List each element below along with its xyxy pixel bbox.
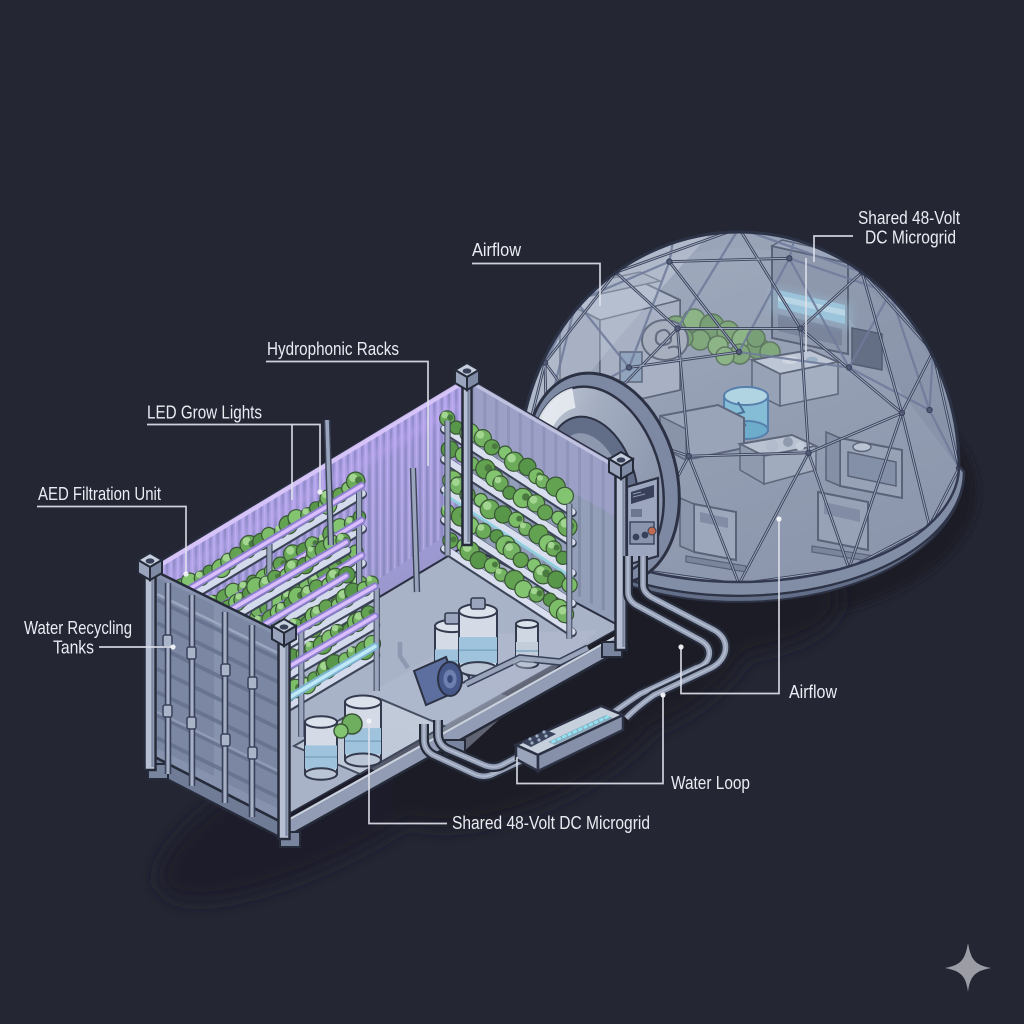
svg-text:Airflow: Airflow <box>789 681 838 702</box>
svg-text:LED Grow Lights: LED Grow Lights <box>147 402 262 423</box>
svg-text:Shared 48-Volt DC Microgrid: Shared 48-Volt DC Microgrid <box>452 812 650 833</box>
svg-text:DC Microgrid: DC Microgrid <box>865 227 956 248</box>
svg-text:Water Recycling: Water Recycling <box>24 617 132 638</box>
svg-text:AED Filtration Unit: AED Filtration Unit <box>38 483 161 504</box>
svg-text:Airflow: Airflow <box>472 239 522 260</box>
svg-text:Water Loop: Water Loop <box>671 772 750 793</box>
svg-text:Hydrophonic Racks: Hydrophonic Racks <box>267 338 399 359</box>
svg-text:Tanks: Tanks <box>53 637 94 658</box>
svg-text:Shared 48-Volt: Shared 48-Volt <box>858 207 960 228</box>
